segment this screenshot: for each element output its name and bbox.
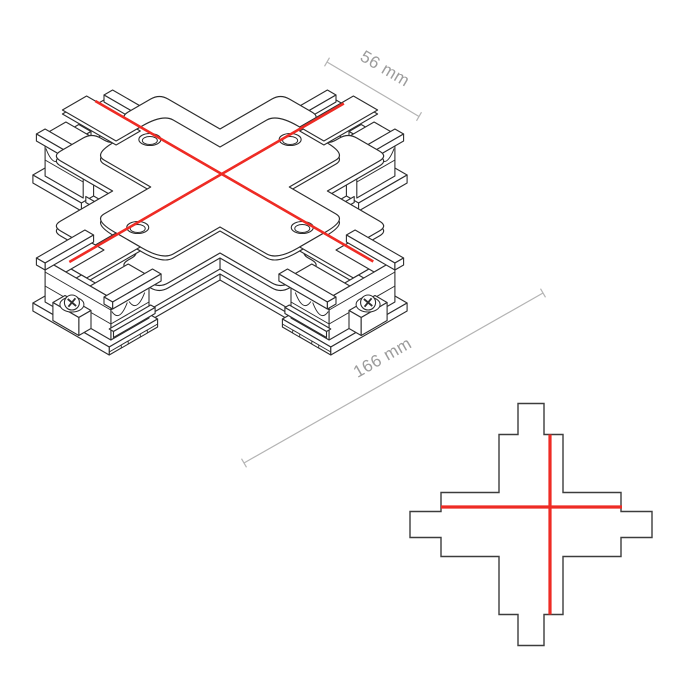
dimension-tick [417,112,422,121]
dimension-tick [242,459,247,468]
mounting-hole [291,222,313,234]
dimension-label-total-length: 166 mm [350,334,415,382]
isometric-view [33,90,407,355]
drawing-canvas: 56 mm 166 mm [0,0,700,700]
dimension-label-arm-width: 56 mm [357,47,413,91]
technical-drawing-svg: 56 mm 166 mm [0,0,700,700]
mounting-hole [139,134,161,146]
dimension-tick [541,289,546,298]
plan-outline [410,404,652,646]
dimension-tick [325,58,330,67]
plan-view [410,404,652,646]
